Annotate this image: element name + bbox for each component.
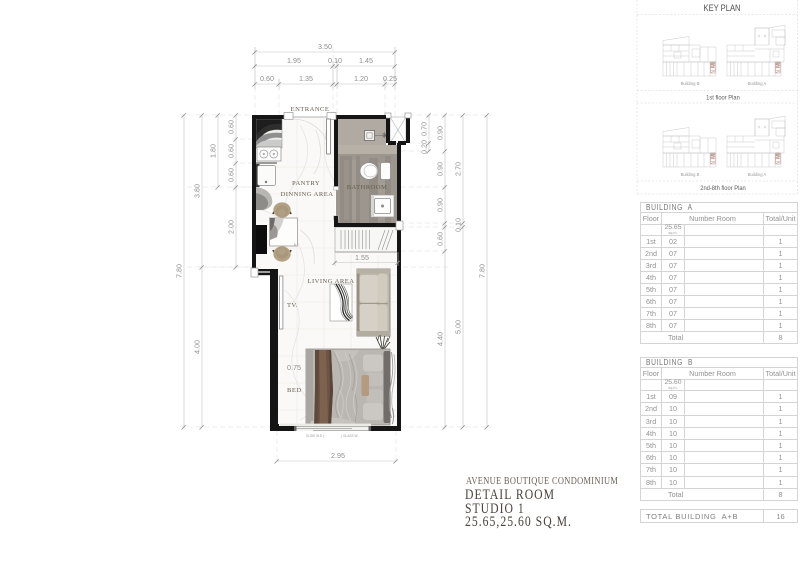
svg-text:0.20: 0.20 — [420, 140, 429, 154]
svg-text:Building A: Building A — [748, 172, 767, 177]
svg-text:2.95: 2.95 — [331, 451, 345, 460]
svg-text:3.80: 3.80 — [193, 184, 202, 198]
svg-text:4.40: 4.40 — [436, 332, 445, 346]
svg-text:0.10: 0.10 — [454, 218, 463, 232]
svg-text:5.00: 5.00 — [454, 320, 463, 334]
svg-text:LIVING AREA: LIVING AREA — [308, 278, 355, 285]
svg-text:SLIDE W.D (: SLIDE W.D ( — [306, 434, 325, 438]
svg-text:KEY PLAN: KEY PLAN — [703, 2, 740, 13]
svg-text:2nd-8th floor Plan: 2nd-8th floor Plan — [700, 185, 746, 193]
svg-text:DINNING AREA: DINNING AREA — [281, 191, 334, 198]
svg-text:1.95: 1.95 — [287, 56, 301, 65]
svg-text:0.75: 0.75 — [287, 363, 301, 372]
svg-text:2.00: 2.00 — [227, 220, 236, 234]
svg-text:4.00: 4.00 — [193, 340, 202, 354]
svg-text:TV.: TV. — [287, 302, 298, 309]
svg-text:Building B: Building B — [681, 172, 700, 177]
svg-text:1.35: 1.35 — [299, 74, 313, 83]
svg-text:3.50: 3.50 — [318, 42, 332, 51]
svg-text:BED: BED — [287, 387, 302, 394]
svg-text:0.90: 0.90 — [436, 126, 445, 140]
svg-text:Building A: Building A — [748, 81, 767, 86]
svg-text:1.45: 1.45 — [359, 56, 373, 65]
svg-text:0.60: 0.60 — [227, 168, 236, 182]
svg-text:PANTRY: PANTRY — [292, 180, 320, 187]
svg-text:0.25: 0.25 — [383, 74, 397, 83]
svg-text:0.90: 0.90 — [436, 198, 445, 212]
svg-text:1.20: 1.20 — [354, 74, 368, 83]
svg-text:1st floor Plan: 1st floor Plan — [706, 94, 740, 102]
svg-text:0.60: 0.60 — [260, 74, 274, 83]
svg-text:0.10: 0.10 — [328, 56, 342, 65]
svg-text:( GLASS W.: ( GLASS W. — [341, 434, 358, 438]
svg-text:0.60: 0.60 — [436, 232, 445, 246]
svg-text:7.80: 7.80 — [478, 264, 487, 278]
svg-text:1.55: 1.55 — [355, 253, 369, 262]
svg-text:0.60: 0.60 — [227, 144, 236, 158]
svg-text:7.80: 7.80 — [175, 264, 184, 278]
svg-text:0.60: 0.60 — [227, 120, 236, 134]
svg-text:0.70: 0.70 — [420, 122, 429, 136]
svg-text:ENTRANCE: ENTRANCE — [291, 106, 330, 113]
svg-text:Building B: Building B — [681, 81, 700, 86]
svg-text:2.70: 2.70 — [454, 162, 463, 176]
svg-text:BATHROOM: BATHROOM — [347, 184, 388, 191]
svg-text:1.80: 1.80 — [209, 144, 218, 158]
svg-text:0.90: 0.90 — [436, 162, 445, 176]
